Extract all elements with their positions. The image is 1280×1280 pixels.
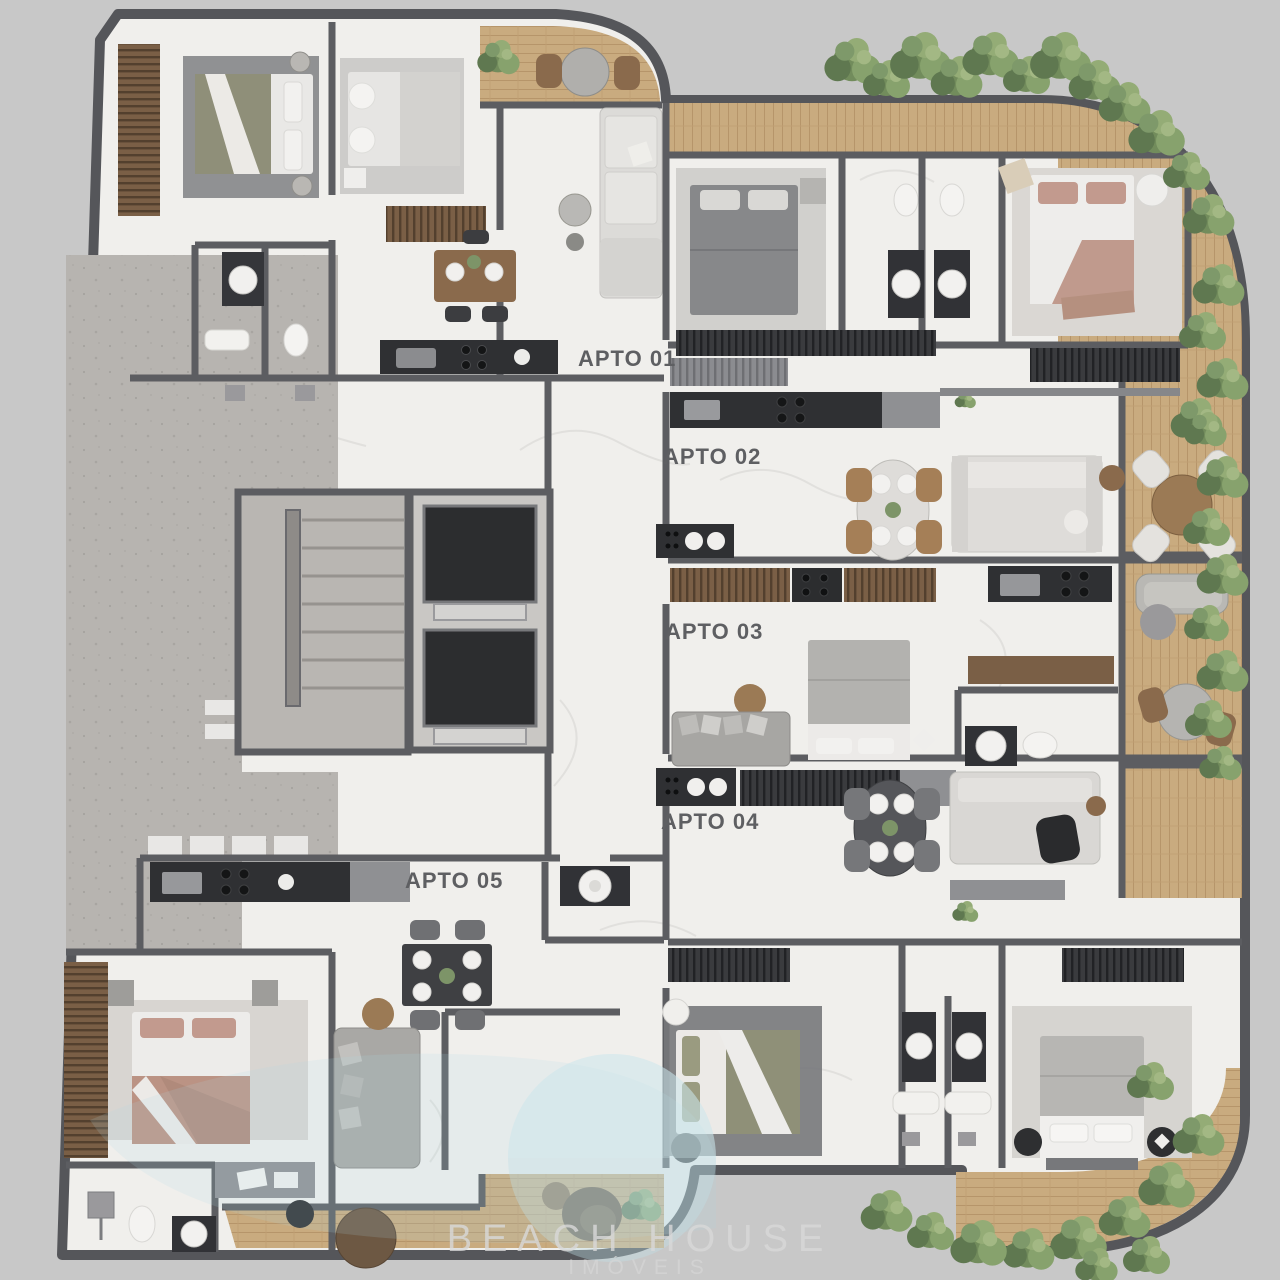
coffee-table [566,233,584,251]
toilet [1023,732,1057,758]
unit-label-apto-03: APTO 03 [665,619,763,644]
floor-plan-render: APTO 01 APTO 02 APTO 03 APTO 04 APTO 05 … [0,0,1280,1280]
elevator-door [434,604,526,620]
chair [844,840,870,872]
shower-head [295,385,315,401]
watermark-subtitle: IMÓVEIS [568,1256,712,1279]
stair-core [238,492,408,752]
shower-head [225,385,245,401]
shower-head [902,1132,920,1146]
unit-label-apto-04: APTO 04 [661,809,759,834]
chair [914,788,940,820]
elevator-shafts [410,492,550,750]
coffee-table [559,194,591,226]
bed [1030,175,1135,320]
chair [846,468,872,502]
stool [463,230,489,244]
plant-icon [882,820,898,836]
shower-head [958,1132,976,1146]
unit-label-apto-01: APTO 01 [578,346,676,371]
elevator-shaft [424,506,536,602]
chair [536,54,562,88]
bathtub [205,330,249,350]
pouf [1147,1127,1177,1157]
shower-head [88,1192,114,1218]
nightstand [108,980,134,1006]
sofa [600,108,662,298]
bench [190,836,224,856]
side-table [290,52,310,72]
toilet [894,184,918,216]
side-table [1140,604,1176,640]
sofa [950,772,1106,865]
round-table [561,48,609,96]
armchair [1034,813,1081,865]
sofa [952,456,1102,552]
side-table [663,999,689,1025]
unit-label-apto-05: APTO 05 [405,868,503,893]
chair [916,468,942,502]
chair [844,788,870,820]
wardrobe [676,330,936,356]
toilet [284,324,308,356]
side-table [1099,465,1125,491]
plant-icon [467,255,481,269]
console-shelf [950,880,1065,900]
bed [195,74,313,174]
dining-set [844,780,940,876]
chair [455,1010,485,1030]
bathroom [560,866,630,906]
kitchen-counter [380,340,558,374]
side-table [734,684,766,716]
wardrobe [1030,348,1180,382]
chair [916,520,942,554]
stool [482,306,508,322]
toilet [940,184,964,216]
bed [808,640,910,760]
nightstand [800,178,826,204]
toilet [129,1206,155,1242]
bench [274,836,308,856]
chair [410,1010,440,1030]
bench [232,836,266,856]
wardrobe [1062,948,1184,982]
pouf [1014,1128,1042,1156]
bed [690,185,798,315]
plant-icon [885,502,901,518]
chair [410,920,440,940]
console-shelf [968,656,1114,684]
chair [614,56,640,90]
watermark-title: BEACH HOUSE [447,1218,834,1260]
bathtub [893,1092,939,1114]
chair [455,920,485,940]
sofa [672,712,790,766]
elevator-shaft [424,630,536,726]
dining-set [846,460,942,560]
kitchen-counter [150,862,410,902]
wardrobe [668,948,790,982]
unit-label-apto-02: APTO 02 [663,444,761,469]
stool [445,306,471,322]
shelf [940,388,1180,396]
plant-icon [439,968,455,984]
side-table [1086,796,1106,816]
floor-plan-svg: APTO 01 APTO 02 APTO 03 APTO 04 APTO 05 … [0,0,1280,1280]
side-table [292,176,312,196]
elevator-door [434,728,526,744]
wardrobe [118,44,160,216]
stair-rail [286,510,300,706]
bed [1040,1036,1144,1170]
nightstand [252,980,278,1006]
chair [846,520,872,554]
chair [914,840,940,872]
bench [148,836,182,856]
side-table [362,998,394,1030]
bathtub [945,1092,991,1114]
